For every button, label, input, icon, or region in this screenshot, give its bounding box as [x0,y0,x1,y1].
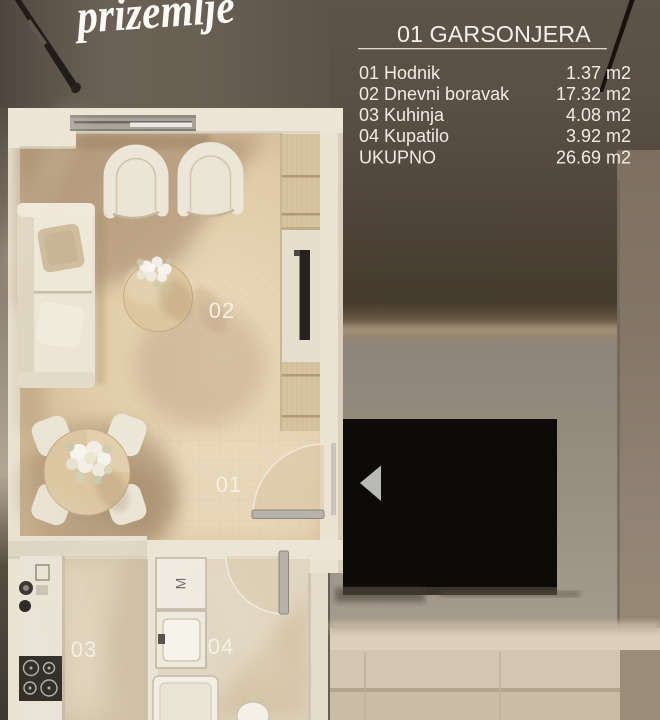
svg-text:01 Hodnik: 01 Hodnik [359,63,441,83]
svg-text:3.92 m2: 3.92 m2 [566,126,631,146]
svg-text:02: 02 [209,298,235,323]
svg-text:02 Dnevni boravak: 02 Dnevni boravak [359,84,510,104]
svg-text:04 Kupatilo: 04 Kupatilo [359,126,449,146]
svg-text:03 Kuhinja: 03 Kuhinja [359,105,445,125]
svg-text:UKUPNO: UKUPNO [359,148,436,168]
svg-text:01 GARSONJERA: 01 GARSONJERA [397,21,591,47]
svg-text:26.69 m2: 26.69 m2 [556,148,631,168]
svg-text:01: 01 [216,472,242,497]
svg-text:1.37 m2: 1.37 m2 [566,63,631,83]
svg-text:17.32 m2: 17.32 m2 [556,84,631,104]
svg-text:M: M [173,578,189,590]
svg-text:4.08 m2: 4.08 m2 [566,105,631,125]
